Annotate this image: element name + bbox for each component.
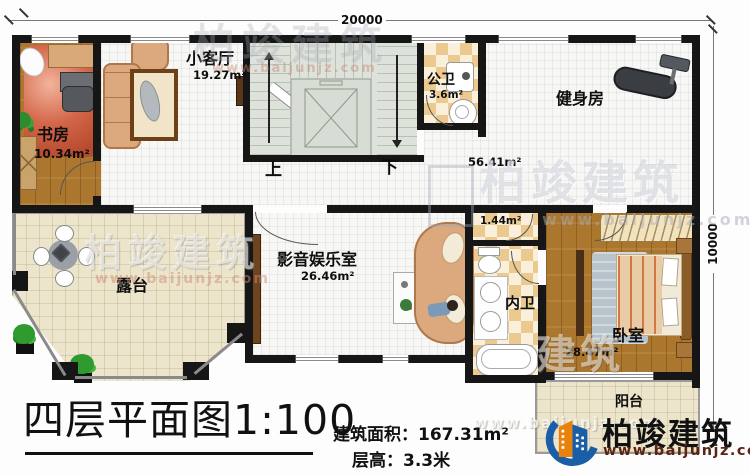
brand-logo-svg (533, 412, 601, 472)
vanity-basin (480, 282, 501, 303)
stair-flight-top (290, 43, 372, 78)
wall-terrace-media (245, 213, 253, 363)
corner-tick (19, 8, 29, 18)
public-wc-area: 3.6m² (429, 90, 463, 101)
wall-mid (533, 205, 593, 213)
terrace-rail (13, 213, 16, 275)
gym-area: 56.41m² (468, 157, 521, 169)
inner-wc-label: 内卫 (505, 296, 535, 311)
wall-wc-left (465, 213, 473, 383)
wall-top (12, 35, 700, 43)
wall-media-bottom (407, 355, 473, 363)
window (635, 35, 682, 43)
wall-mid (627, 205, 700, 213)
living-area: 19.27m² (193, 70, 246, 82)
wall-stair-left (243, 43, 250, 155)
stair-arrow-up (268, 55, 270, 143)
terrace-chair (78, 247, 95, 266)
table-item (401, 281, 408, 288)
rug-oval-motif (136, 78, 164, 123)
toilet-bowl (478, 255, 501, 274)
title-underline (25, 452, 313, 455)
stair-arrowhead-down (392, 140, 402, 148)
window-balcony-door (554, 372, 654, 380)
wall-left (12, 35, 20, 213)
terrace-label: 露台 (116, 278, 148, 294)
terrace-chair (55, 225, 74, 242)
bathtub-inner (481, 349, 531, 369)
study-cabinet (20, 136, 37, 190)
bed-blanket (618, 256, 662, 334)
window (295, 355, 339, 363)
floor-height-line: 层高：3.3米 (352, 446, 450, 471)
vanity-basin (480, 311, 501, 332)
wall-mid (327, 205, 533, 213)
basin-ring (455, 105, 469, 119)
window (31, 35, 79, 43)
pillow (661, 257, 679, 286)
elevator-shaft-symbol (290, 78, 372, 158)
bedroom-tv-panel (576, 250, 584, 336)
wall-bedroom-bottom (652, 372, 692, 380)
terrace-plant (13, 324, 35, 344)
balcony-label: 阳台 (615, 395, 643, 409)
building-area-line: 建筑面积：167.31m² (333, 420, 509, 445)
media-area: 26.46m² (301, 271, 354, 283)
brand-website: www.baijunjz.com (603, 443, 750, 459)
window (498, 35, 569, 43)
wall-wc-right (538, 213, 546, 250)
person-head (447, 300, 458, 311)
gym-label: 健身房 (556, 91, 604, 107)
living-rug-frame (130, 69, 178, 141)
wall-mid (200, 205, 253, 213)
wall-study-living (93, 43, 101, 161)
logo-building-blue (572, 424, 587, 459)
terrace-table (48, 240, 78, 270)
window (133, 205, 202, 213)
wall-wc-bottom (465, 375, 546, 383)
plan-title: 四层平面图1:100 (23, 398, 356, 443)
terrace-rail-bottom (75, 376, 187, 379)
living-label: 小客厅 (186, 51, 234, 67)
stair-arrow-down (396, 55, 398, 143)
elevator-shaft (290, 78, 372, 162)
desk-chair (62, 86, 94, 112)
window (130, 35, 190, 43)
dimension-right-value: 10000 (707, 215, 719, 273)
window (411, 35, 466, 43)
dimension-top-value: 20000 (338, 14, 386, 26)
stair-up-label: 上 (265, 162, 282, 179)
building-area-value: 167.31m² (418, 425, 509, 445)
vanity-counter (474, 276, 508, 340)
terrace-chair (55, 270, 74, 287)
sink-drain (462, 72, 470, 80)
study-label: 书房 (37, 127, 69, 143)
sofa-cushion (438, 230, 468, 267)
wall-stair-right (417, 43, 424, 130)
wall-mid (12, 205, 133, 213)
study-area: 10.34m² (34, 148, 90, 160)
stair-down-label: 下 (381, 160, 398, 177)
wall-media-bottom (245, 355, 295, 363)
floor-plan-canvas: 书房 10.34m² 小客厅 19.27m² 公卫 3.6m² 健身房 56.4… (0, 0, 750, 474)
pillow (661, 297, 679, 326)
public-wc-label: 公卫 (427, 73, 455, 87)
terrace-chair (33, 247, 50, 266)
bedroom-area: 28.47m² (565, 347, 618, 359)
building-area-label: 建筑面积： (333, 425, 418, 445)
brand-logo-icon (533, 412, 601, 474)
media-label: 影音娱乐室 (277, 252, 357, 268)
wall-publicwc-right (478, 43, 486, 137)
wall-study-stub (93, 196, 101, 205)
wall-bedroom-bottom (546, 372, 554, 380)
wall-media-bottom (337, 355, 382, 363)
floor-height-value: 3.3米 (403, 451, 450, 471)
stair-arrowhead-up (264, 52, 274, 60)
window (382, 355, 409, 363)
bedroom-label: 卧室 (612, 328, 644, 344)
closet-area: 1.44m² (480, 216, 521, 227)
bathtub (476, 344, 538, 376)
logo-building-orange (559, 420, 573, 457)
table-center (51, 243, 71, 263)
wall-wc-right (538, 285, 546, 383)
table-plant (400, 299, 412, 311)
floor-height-label: 层高： (352, 451, 403, 471)
